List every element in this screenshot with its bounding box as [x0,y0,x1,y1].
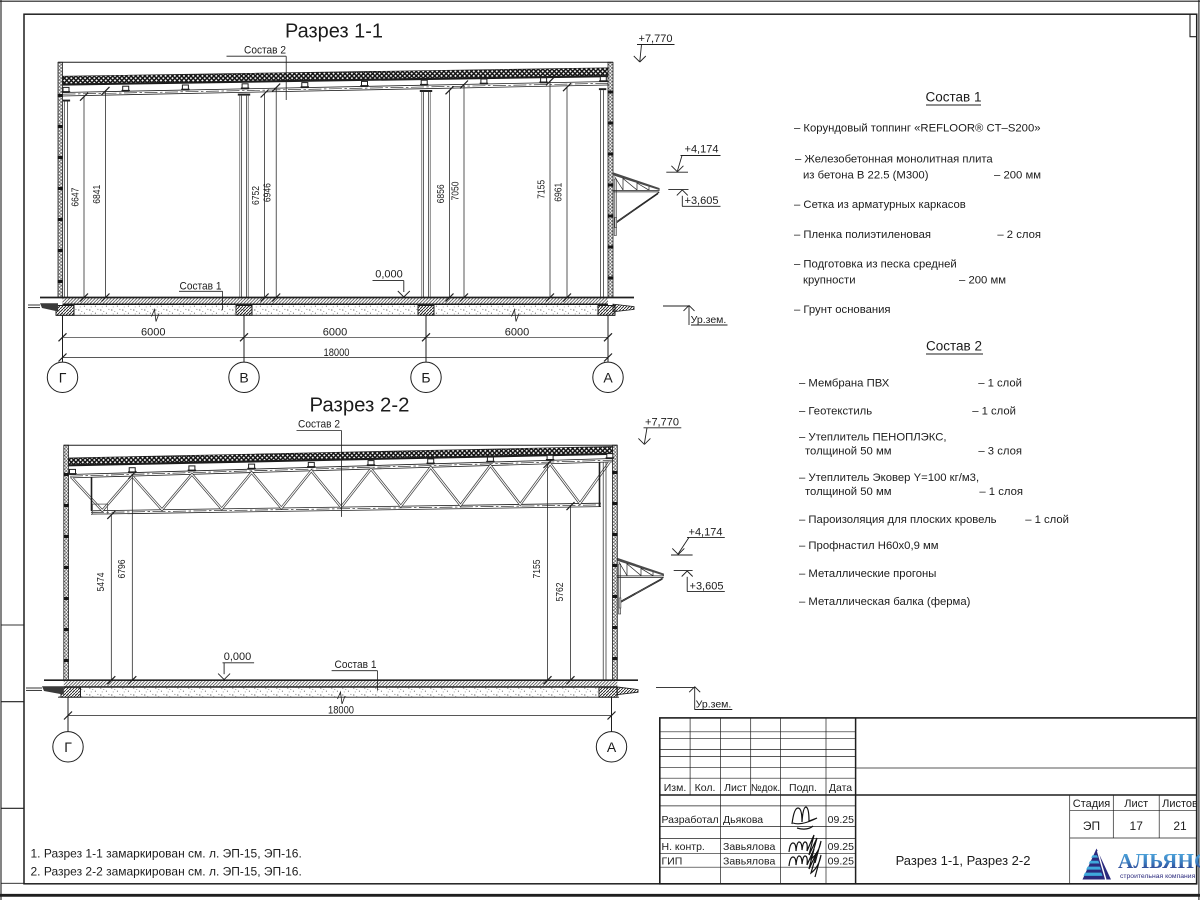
svg-text:Стадия: Стадия [1073,798,1111,810]
svg-text:– 1 слоя: – 1 слоя [979,486,1023,498]
svg-text:– Утеплитель Эковер Y=100 кг/м: – Утеплитель Эковер Y=100 кг/м3, [799,472,979,484]
svg-text:2. Разрез 2-2 замаркирован см.: 2. Разрез 2-2 замаркирован см. л. ЭП-15,… [31,865,302,879]
svg-text:строительная компания: строительная компания [1120,873,1196,880]
svg-text:+3,605: +3,605 [685,195,719,207]
svg-text:5762: 5762 [554,582,566,601]
svg-text:0,000: 0,000 [375,268,403,280]
svg-text:Состав 1: Состав 1 [335,659,377,671]
svg-text:– Мембрана ПВХ: – Мембрана ПВХ [799,377,890,389]
svg-text:– 2 слоя: – 2 слоя [997,229,1041,241]
svg-text:Состав 1: Состав 1 [180,280,222,292]
svg-text:09.25: 09.25 [828,814,854,826]
svg-text:– Металлические прогоны: – Металлические прогоны [799,568,936,580]
svg-text:Подп.: Подп. [789,782,817,794]
svg-text:+4,174: +4,174 [689,526,723,538]
svg-text:5474: 5474 [95,572,107,591]
svg-text:В: В [239,369,248,385]
svg-text:6000: 6000 [505,327,529,339]
svg-text:Ур.зем.: Ур.зем. [691,314,727,326]
svg-text:Г: Г [64,739,72,755]
svg-text:– 200 мм: – 200 мм [994,170,1041,182]
svg-text:– Профнастил Н60х0,9 мм: – Профнастил Н60х0,9 мм [799,540,939,552]
svg-text:– Пленка полиэтиленовая: – Пленка полиэтиленовая [794,229,931,241]
svg-text:– 1 слой: – 1 слой [978,377,1022,389]
svg-text:– Сетка из арматурных каркасов: – Сетка из арматурных каркасов [794,199,966,211]
svg-text:– 1 слой: – 1 слой [972,405,1016,417]
svg-text:Б: Б [421,369,430,385]
svg-text:17: 17 [1130,819,1144,833]
svg-text:+4,174: +4,174 [685,143,719,155]
svg-text:Ур.зем.: Ур.зем. [696,698,732,710]
svg-text:Завьялова: Завьялова [723,841,775,853]
svg-text:– Пароизоляция для плоских кро: – Пароизоляция для плоских кровель [799,514,997,526]
svg-text:толщиной 50 мм: толщиной 50 мм [805,486,892,498]
svg-text:Изм.: Изм. [664,782,687,794]
svg-text:6961: 6961 [553,183,565,202]
svg-text:1. Разрез 1-1 замаркирован см.: 1. Разрез 1-1 замаркирован см. л. ЭП-15,… [31,847,302,861]
svg-text:№док.: №док. [751,783,780,794]
svg-text:Дьякова: Дьякова [723,814,763,826]
svg-text:+3,605: +3,605 [690,580,724,592]
svg-text:6856: 6856 [435,184,447,203]
svg-text:6000: 6000 [323,327,347,339]
svg-text:Разработал: Разработал [662,814,719,826]
svg-text:21: 21 [1173,819,1187,833]
svg-text:Завьялова: Завьялова [723,856,775,868]
svg-text:7050: 7050 [450,181,462,200]
svg-text:18000: 18000 [328,704,354,716]
svg-text:6752: 6752 [250,186,262,205]
svg-text:18000: 18000 [324,347,350,359]
svg-text:– Железобетонная монолитная п: – Железобетонная монолитная плита [795,154,993,166]
svg-text:6841: 6841 [91,185,103,204]
svg-text:ЭП: ЭП [1083,819,1100,833]
svg-text:– Металлическая балка (ферма): – Металлическая балка (ферма) [799,596,971,608]
svg-text:Состав 2: Состав 2 [244,45,286,57]
svg-text:– Подготовка из песка средней: – Подготовка из песка средней [794,259,957,271]
svg-text:Состав 2: Состав 2 [926,339,982,354]
svg-text:Г: Г [59,369,67,385]
svg-text:– Геотекстиль: – Геотекстиль [799,405,872,417]
svg-text:– Утеплитель ПЕНОПЛЭКС,: – Утеплитель ПЕНОПЛЭКС, [799,432,947,444]
svg-text:– Корундовый топпинг «REFLOOR®: – Корундовый топпинг «REFLOOR® CT–S200» [794,123,1041,135]
svg-text:из бетона В 22.5 (М300): из бетона В 22.5 (М300) [803,170,929,182]
svg-text:А: А [603,369,613,385]
svg-text:6946: 6946 [262,183,274,202]
svg-text:Лист: Лист [724,782,747,794]
svg-text:Кол.: Кол. [695,782,716,794]
svg-text:09.25: 09.25 [828,856,854,868]
svg-text:толщиной 50 мм: толщиной 50 мм [805,446,892,458]
svg-text:Лист: Лист [1124,798,1148,810]
svg-text:Разрез 2-2: Разрез 2-2 [310,394,410,417]
svg-text:+7,770: +7,770 [645,416,679,428]
svg-text:АЛЬЯНС: АЛЬЯНС [1118,849,1200,873]
svg-text:6647: 6647 [70,187,82,206]
svg-text:7155: 7155 [536,180,548,199]
svg-text:+7,770: +7,770 [639,33,673,45]
svg-text:крупности: крупности [803,274,856,286]
svg-text:6796: 6796 [116,559,128,578]
svg-text:Состав 1: Состав 1 [926,90,982,105]
svg-text:09.25: 09.25 [828,841,854,853]
svg-text:Листов: Листов [1162,798,1198,810]
svg-text:6000: 6000 [141,327,165,339]
svg-text:Состав 2: Состав 2 [298,419,340,431]
svg-text:– 1 слой: – 1 слой [1025,514,1069,526]
svg-text:7155: 7155 [531,559,543,578]
svg-text:Разрез 1-1: Разрез 1-1 [285,20,383,43]
svg-text:Разрез 1-1, Разрез 2-2: Разрез 1-1, Разрез 2-2 [896,853,1031,868]
svg-text:А: А [607,739,617,755]
svg-text:Н. контр.: Н. контр. [662,841,705,853]
svg-text:– Грунт основания: – Грунт основания [794,304,891,316]
svg-text:– 3 слоя: – 3 слоя [978,446,1022,458]
svg-text:Дата: Дата [829,782,852,794]
svg-text:– 200 мм: – 200 мм [959,274,1006,286]
svg-text:0,000: 0,000 [224,651,252,663]
svg-text:ГИП: ГИП [662,856,683,868]
